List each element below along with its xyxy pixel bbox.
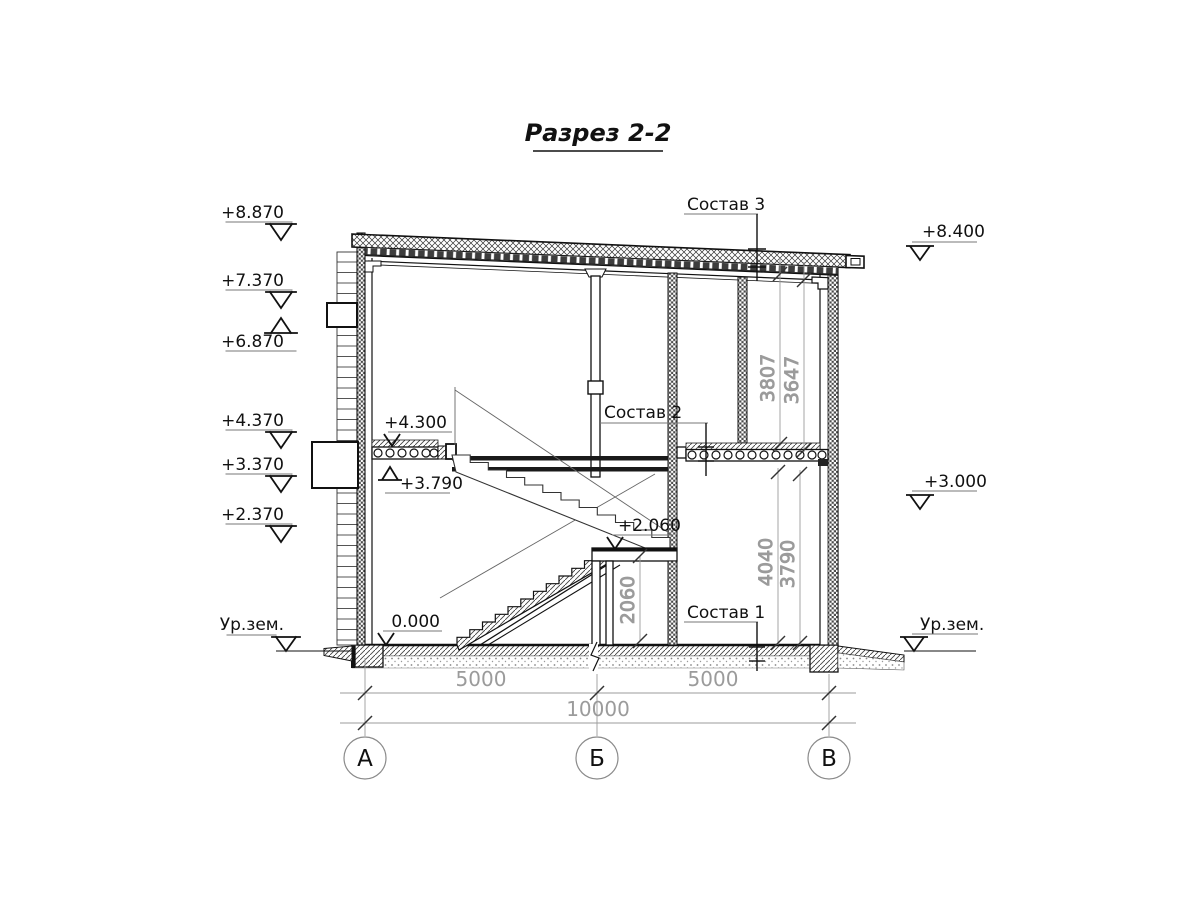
mark-3370: +3.370 bbox=[221, 455, 296, 492]
mark-2370-label: +2.370 bbox=[221, 505, 284, 525]
callout-2-label: Состав 2 bbox=[604, 403, 682, 423]
landing-support-wall-left bbox=[592, 561, 600, 645]
stairwell-partition-lower bbox=[668, 561, 677, 645]
dim-5000-right-label: 5000 bbox=[688, 667, 739, 691]
mark-3370-label: +3.370 bbox=[221, 455, 284, 475]
mark-4370-label: +4.370 bbox=[221, 411, 284, 431]
dim-3807-label: 3807 bbox=[757, 354, 779, 402]
mark-2060-label: +2.060 bbox=[618, 516, 681, 536]
mark-8870: +8.870 bbox=[221, 203, 296, 240]
mark-8870-label: +8.870 bbox=[221, 203, 284, 223]
ground-right-label: Ур.зем. bbox=[920, 615, 984, 635]
partition-right-room bbox=[738, 277, 747, 443]
section-drawing: Разрез 2-2 bbox=[0, 0, 1200, 900]
dim-line-10000: 10000 bbox=[340, 697, 856, 730]
roof-left-bracket bbox=[365, 261, 381, 272]
blind-area-right bbox=[838, 646, 904, 670]
slab-bearing-block bbox=[677, 447, 686, 458]
callout-sostav-2: Состав 2 bbox=[600, 403, 714, 476]
partition-coupling bbox=[588, 381, 603, 394]
roof-end-cap-inner bbox=[851, 259, 860, 266]
grid-axes: А Б В bbox=[344, 737, 850, 779]
lower-flight bbox=[457, 553, 612, 650]
mark-7370-label: +7.370 bbox=[221, 271, 284, 291]
dim-10000-label: 10000 bbox=[566, 697, 630, 721]
callout-3-label: Состав 3 bbox=[687, 195, 765, 215]
ground-left-label: Ур.зем. bbox=[220, 615, 284, 635]
partition-axis-b-upper bbox=[585, 269, 606, 477]
left-wall-box-upper bbox=[327, 303, 357, 327]
left-wall-core bbox=[357, 233, 365, 645]
axis-v-label: В bbox=[821, 746, 837, 772]
mark-3790-label: +3.790 bbox=[400, 474, 463, 494]
mark-8400-label: +8.400 bbox=[922, 222, 985, 242]
mark-0000: 0.000 bbox=[378, 612, 442, 645]
title-text: Разрез 2-2 bbox=[525, 119, 672, 147]
landing-support-wall-right bbox=[606, 561, 613, 645]
slab-right-detail bbox=[818, 459, 828, 466]
dim-3647: 3647 bbox=[781, 262, 811, 457]
axis-b-label: Б bbox=[589, 746, 605, 772]
floor-slab-left bbox=[372, 440, 456, 459]
mark-3790: +3.790 bbox=[378, 467, 463, 494]
left-wall bbox=[312, 233, 372, 645]
mark-2370: +2.370 bbox=[221, 505, 296, 542]
left-wall-box-lower bbox=[312, 442, 358, 488]
dim-3807: 3807 bbox=[757, 258, 787, 451]
dim-3647-label: 3647 bbox=[781, 356, 803, 404]
mark-4370: +4.370 bbox=[221, 411, 296, 448]
dim-2060: 2060 bbox=[617, 549, 647, 648]
dim-line-5000: 5000 5000 bbox=[340, 667, 856, 700]
mark-6870: +6.870 bbox=[221, 318, 297, 352]
elevation-marks-left: +8.870 +7.370 +6.870 +4.370 +3.370 bbox=[220, 203, 300, 651]
dim-3790-label: 3790 bbox=[777, 540, 799, 588]
drawing-title: Разрез 2-2 bbox=[525, 119, 672, 151]
mark-3000-label: +3.000 bbox=[924, 472, 987, 492]
bottom-dimensions: 5000 5000 10000 А Б В bbox=[340, 658, 856, 779]
dim-2060-label: 2060 bbox=[617, 576, 639, 624]
break-symbol bbox=[589, 642, 599, 671]
landing bbox=[592, 548, 677, 561]
blind-area-left bbox=[324, 646, 352, 661]
right-wall-core bbox=[828, 267, 838, 645]
mark-8400: +8.400 bbox=[906, 222, 985, 260]
mark-7370: +7.370 bbox=[221, 271, 296, 308]
roof bbox=[352, 234, 864, 289]
foundation-left bbox=[355, 645, 383, 667]
mark-6870-label: +6.870 bbox=[221, 332, 284, 352]
callout-1-label: Состав 1 bbox=[687, 603, 765, 623]
dim-5000-left-label: 5000 bbox=[456, 667, 507, 691]
axis-a-label: А bbox=[357, 746, 373, 772]
mark-ground-left: Ур.зем. bbox=[220, 615, 300, 651]
mark-0000-label: 0.000 bbox=[391, 612, 440, 632]
mark-ground-right: Ур.зем. bbox=[900, 615, 984, 651]
mark-3000: +3.000 bbox=[906, 472, 987, 509]
foundation-right bbox=[810, 645, 838, 672]
elevation-marks-right: +8.400 +3.000 Ур.зем. bbox=[900, 222, 987, 651]
dim-3790: 3790 bbox=[777, 467, 807, 650]
dim-4040-label: 4040 bbox=[755, 538, 777, 586]
drawing-page: Разрез 2-2 bbox=[0, 0, 1200, 900]
roof-right-beam bbox=[812, 277, 828, 289]
mark-4300-label: +4.300 bbox=[384, 413, 447, 433]
